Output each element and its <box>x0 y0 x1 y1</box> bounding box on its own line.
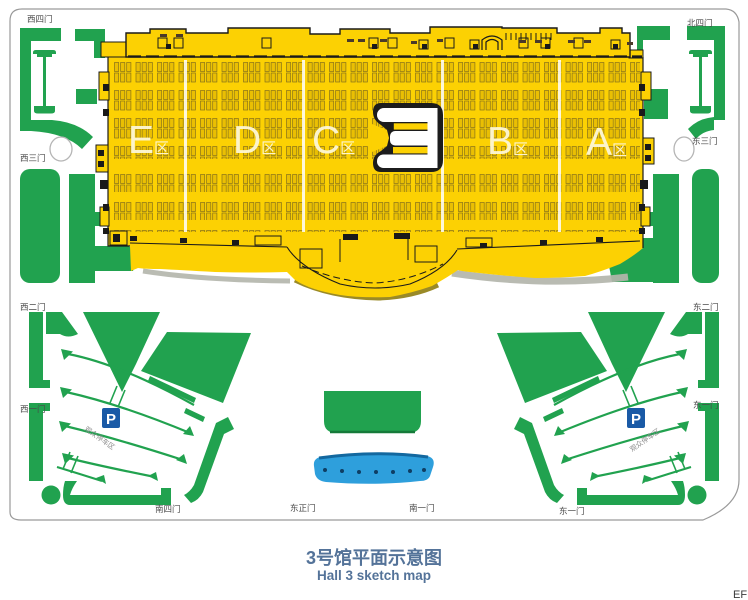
svg-text:南一门: 南一门 <box>409 503 435 513</box>
svg-text:东正门: 东正门 <box>290 503 316 513</box>
svg-text:EF: EF <box>733 589 747 600</box>
svg-text:东一门: 东一门 <box>693 400 719 410</box>
svg-text:西二门: 西二门 <box>20 302 46 312</box>
svg-text:P: P <box>631 411 641 428</box>
svg-text:东二门: 东二门 <box>693 302 719 312</box>
svg-text:西三门: 西三门 <box>20 153 46 163</box>
svg-text:北四门: 北四门 <box>687 18 713 28</box>
svg-text:东一门: 东一门 <box>559 506 585 516</box>
svg-text:西四门: 西四门 <box>27 14 53 24</box>
svg-text:东三门: 东三门 <box>692 136 718 146</box>
svg-text:西一门: 西一门 <box>20 404 46 414</box>
svg-text:南四门: 南四门 <box>155 504 181 514</box>
svg-text:Hall 3 sketch map: Hall 3 sketch map <box>317 568 431 583</box>
svg-text:3号馆平面示意图: 3号馆平面示意图 <box>306 547 442 568</box>
svg-text:P: P <box>106 411 116 428</box>
